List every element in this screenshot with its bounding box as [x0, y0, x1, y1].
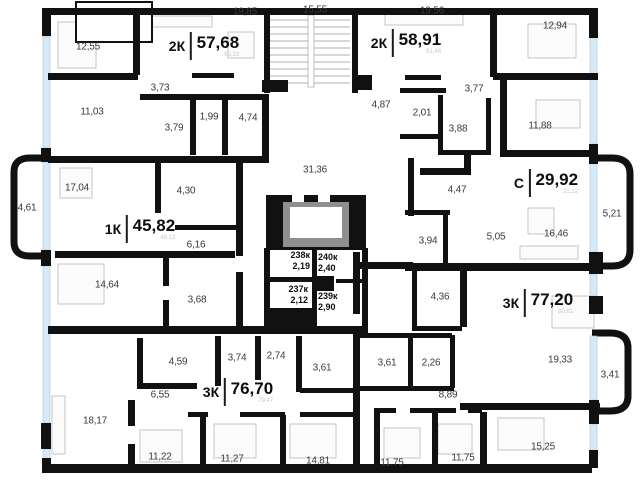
unit-type: 3К [503, 295, 519, 311]
unit-label[interactable]: 2К57,6860,23 [169, 32, 239, 60]
storage-unit-area: 2,12 [266, 295, 308, 306]
room-area-label: 19,33 [548, 355, 572, 366]
unit-type: 2К [371, 35, 387, 51]
room-area-label: 14,81 [306, 456, 330, 467]
unit-area-total: 80,61 [558, 309, 573, 315]
unit-area-total: 60,23 [224, 52, 239, 58]
unit-label[interactable]: 2К58,9161,46 [371, 29, 441, 57]
room-area-label: 11,03 [80, 107, 103, 118]
balcony-area-label: 5,21 [603, 209, 622, 220]
room-area-label: 3,77 [465, 84, 484, 95]
storage-unit-label: 237к2,12 [266, 284, 308, 305]
unit-area: 57,68 [197, 34, 240, 51]
unit-areas: 77,2080,61 [531, 291, 574, 315]
room-area-label: 11,22 [148, 452, 171, 463]
unit-divider [126, 215, 128, 243]
unit-type: С [514, 175, 524, 191]
room-area-label: 1,99 [200, 112, 219, 123]
unit-label[interactable]: 3К77,2080,61 [503, 289, 573, 317]
staircase-area-label: 15,55 [303, 5, 327, 16]
unit-area: 58,91 [399, 31, 442, 48]
room-area-label: 11,88 [528, 121, 551, 132]
room-area-label: 3,68 [188, 295, 207, 306]
unit-area: 45,82 [133, 217, 176, 234]
room-area-label: 16,46 [544, 229, 568, 240]
room-area-label: 14,64 [95, 280, 119, 291]
unit-areas: 58,9161,46 [399, 31, 442, 55]
room-area-label: 17,04 [65, 183, 89, 194]
room-area-label: 3,94 [419, 236, 438, 247]
unit-label[interactable]: С29,9231,12 [514, 169, 578, 197]
room-area-label: 3,88 [449, 124, 468, 135]
unit-area-total: 48,13 [160, 235, 175, 241]
room-area-label: 2,01 [413, 108, 432, 119]
storage-unit-area: 2,90 [318, 302, 356, 313]
unit-area-total: 31,12 [563, 189, 578, 195]
balcony-area-label: 3,41 [601, 370, 620, 381]
unit-areas: 57,6860,23 [197, 34, 240, 58]
room-area-label: 11,75 [451, 453, 474, 464]
room-area-label: 4,87 [372, 100, 391, 111]
storage-unit-label: 238к2,19 [272, 250, 310, 271]
room-area-label: 6,55 [151, 390, 170, 401]
unit-area: 77,20 [531, 291, 574, 308]
room-area-label: 12,94 [543, 21, 567, 32]
room-area-label: 8,89 [439, 390, 458, 401]
room-area-label: 4,36 [431, 292, 450, 303]
unit-divider [190, 32, 192, 60]
unit-type: 1К [105, 221, 121, 237]
corridor-area-label: 31,36 [303, 165, 327, 176]
floor-plan: 12,5519,853,7311,033,791,994,7419,5612,9… [0, 0, 640, 480]
room-area-label: 4,30 [177, 186, 196, 197]
storage-unit-number: 239к [318, 291, 356, 302]
unit-type: 2К [169, 38, 185, 54]
room-area-label: 3,61 [313, 363, 332, 374]
unit-divider [392, 29, 394, 57]
room-area-label: 4,74 [239, 113, 258, 124]
unit-type: 3К [203, 384, 219, 400]
room-area-label: 3,73 [151, 83, 170, 94]
room-area-label: 4,59 [169, 357, 188, 368]
unit-area-total: 61,46 [426, 49, 441, 55]
room-area-label: 19,56 [420, 6, 444, 17]
unit-divider [529, 169, 531, 197]
unit-areas: 76,7079,47 [231, 380, 274, 404]
storage-unit-label: 239к2,90 [318, 291, 356, 312]
room-area-label: 3,79 [165, 123, 184, 134]
storage-unit-area: 2,19 [272, 261, 310, 272]
unit-area: 76,70 [231, 380, 274, 397]
storage-unit-number: 237к [266, 284, 308, 295]
room-area-label: 5,05 [487, 232, 506, 243]
room-area-label: 15,25 [531, 442, 555, 453]
storage-unit-label: 240к2,40 [318, 252, 356, 273]
storage-unit-number: 240к [318, 252, 356, 263]
room-area-label: 11,27 [220, 454, 243, 465]
unit-label[interactable]: 1К45,8248,13 [105, 215, 175, 243]
unit-divider [524, 289, 526, 317]
unit-label[interactable]: 3К76,7079,47 [203, 378, 273, 406]
unit-areas: 29,9231,12 [536, 171, 579, 195]
room-area-label: 6,16 [187, 240, 206, 251]
unit-area: 29,92 [536, 171, 579, 188]
room-area-label: 12,55 [76, 42, 100, 53]
room-area-label: 3,61 [378, 358, 397, 369]
balcony-area-label: 4,61 [18, 203, 37, 214]
room-area-label: 4,47 [448, 185, 467, 196]
unit-areas: 45,8248,13 [133, 217, 176, 241]
room-area-label: 18,17 [83, 416, 107, 427]
room-area-label: 2,74 [267, 351, 286, 362]
room-area-label: 19,85 [233, 7, 257, 18]
storage-unit-area: 2,40 [318, 263, 356, 274]
unit-divider [224, 378, 226, 406]
unit-area-total: 79,47 [258, 398, 273, 404]
room-area-label: 2,26 [422, 358, 441, 369]
room-area-label: 11,75 [380, 458, 403, 469]
labels-layer: 12,5519,853,7311,033,791,994,7419,5612,9… [0, 0, 640, 480]
room-area-label: 3,74 [228, 353, 247, 364]
storage-unit-number: 238к [272, 250, 310, 261]
